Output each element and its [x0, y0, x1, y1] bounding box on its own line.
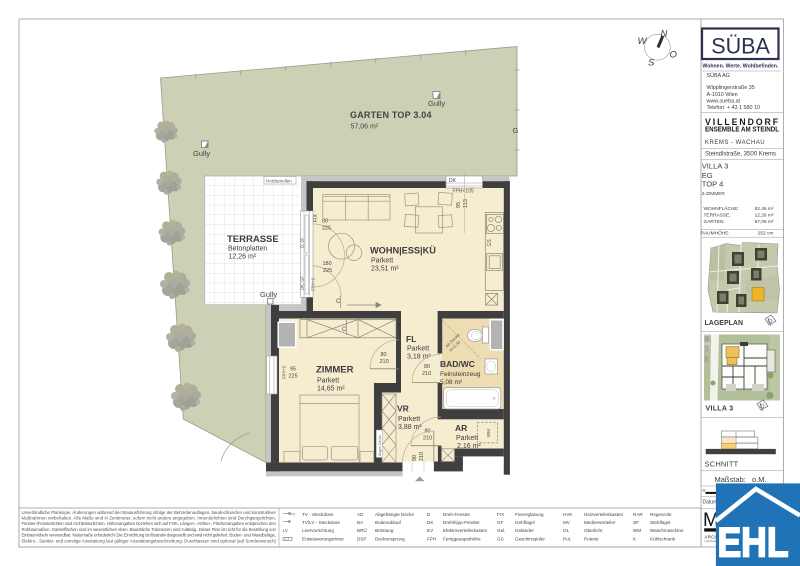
svg-text:Wipplingerstraße 35: Wipplingerstraße 35	[707, 85, 755, 91]
svg-text:113: 113	[463, 199, 469, 208]
svg-text:Steindlstraße, 3500 Krems: Steindlstraße, 3500 Krems	[705, 152, 776, 158]
svg-text:Regenrohr: Regenrohr	[650, 512, 672, 517]
svg-text:Abgehängte Decke: Abgehängte Decke	[375, 512, 415, 517]
svg-text:Fertigparapethöhe: Fertigparapethöhe	[443, 536, 481, 541]
svg-text:DK, GF: DK, GF	[300, 276, 305, 290]
svg-text:C: C	[336, 299, 341, 305]
svg-text:MV: MV	[563, 520, 571, 525]
svg-text:DK: DK	[427, 520, 434, 525]
svg-text:Gully: Gully	[428, 99, 445, 108]
svg-text:Puterie: Puterie	[584, 536, 599, 541]
svg-text:RAR: RAR	[633, 512, 643, 517]
svg-text:HVK: HVK	[563, 512, 573, 517]
svg-text:mayrhofer: mayrhofer	[705, 539, 718, 543]
svg-text:FIX: FIX	[313, 214, 319, 222]
svg-text:BAD/WC: BAD/WC	[440, 359, 475, 369]
svg-text:5,08 m²: 5,08 m²	[440, 379, 463, 386]
svg-text:Feinsteinzeug: Feinsteinzeug	[440, 371, 481, 378]
svg-text:Fenster-/Fensterlichten sind A: Fenster-/Fensterlichten sind Architektur…	[22, 521, 277, 526]
svg-text:O: O	[670, 50, 678, 61]
svg-text:FPH+5: FPH+5	[282, 365, 287, 379]
svg-text:N: N	[661, 29, 668, 40]
svg-text:ENSEMBLE AM STEINDL: ENSEMBLE AM STEINDL	[705, 127, 780, 134]
svg-text:ZIMMER: ZIMMER	[316, 365, 354, 376]
svg-text:VILLA 3: VILLA 3	[706, 406, 734, 413]
svg-text:252 cm: 252 cm	[758, 230, 774, 236]
svg-text:WM: WM	[633, 528, 641, 533]
svg-text:BRÜ: BRÜ	[357, 527, 367, 533]
svg-text:Parkett: Parkett	[407, 346, 429, 353]
svg-text:DSP: DSP	[357, 536, 366, 541]
svg-text:80: 80	[381, 352, 387, 358]
svg-text:210: 210	[422, 371, 431, 377]
svg-text:TERRASSE:: TERRASSE:	[704, 213, 731, 219]
svg-text:Gully: Gully	[260, 290, 277, 299]
svg-text:Datum: Datum	[703, 500, 718, 506]
svg-text:GS: GS	[487, 239, 493, 247]
svg-text:225: 225	[322, 226, 331, 232]
svg-text:Stehflügel: Stehflügel	[650, 520, 670, 525]
svg-text:VILLENDORF: VILLENDORF	[705, 117, 780, 127]
svg-text:G: G	[513, 126, 519, 135]
svg-text:SCHNITT: SCHNITT	[705, 460, 739, 469]
svg-text:FPH+0: FPH+0	[311, 277, 316, 291]
svg-text:225: 225	[323, 268, 332, 274]
svg-text:DK: DK	[449, 178, 457, 184]
svg-text:WOHNFLÄCHE:: WOHNFLÄCHE:	[704, 205, 739, 212]
svg-text:GARTEN:: GARTEN:	[704, 219, 725, 225]
svg-text:Parkett: Parkett	[456, 435, 478, 442]
svg-text:80: 80	[424, 364, 430, 370]
svg-text:Parkett: Parkett	[317, 378, 339, 385]
svg-text:TV - Steckdose: TV - Steckdose	[302, 512, 334, 517]
svg-text:Gully: Gully	[193, 149, 210, 158]
svg-text:Leervorrichtung: Leervorrichtung	[302, 528, 334, 533]
svg-text:225: 225	[289, 374, 298, 380]
svg-text:Gel.: Gel.	[497, 528, 505, 533]
svg-text:Abgeh.Decke: Abgeh.Decke	[378, 435, 382, 456]
svg-text:Einbaumöbeln verwendbar. Natur: Einbaumöbeln verwendbar. Naturmaße erfor…	[22, 533, 277, 538]
svg-text:Brüstung: Brüstung	[375, 528, 394, 533]
svg-text:Heizverteilerkasten: Heizverteilerkasten	[584, 512, 624, 517]
svg-text:12,26 m²: 12,26 m²	[229, 254, 257, 261]
svg-text:GARTEN TOP 3.04: GARTEN TOP 3.04	[350, 110, 432, 120]
svg-text:210: 210	[419, 452, 425, 461]
svg-text:OL: OL	[563, 528, 570, 533]
svg-text:Maßnahmen vorbehalten. Alle: Maßnahmen vorbehalten. Alle Maße sind in…	[22, 516, 277, 521]
svg-text:Deckensprung: Deckensprung	[375, 536, 405, 541]
svg-text:SÜBA: SÜBA	[711, 33, 770, 58]
svg-text:D, SF: D, SF	[300, 237, 305, 248]
svg-text:TERRASSE: TERRASSE	[227, 234, 279, 245]
svg-text:TOP 4: TOP 4	[702, 179, 724, 188]
svg-text:VR: VR	[397, 404, 409, 414]
svg-text:www.sueba.at: www.sueba.at	[706, 98, 741, 104]
svg-text:AD: AD	[357, 512, 364, 517]
svg-text:A-1010 Wien: A-1010 Wien	[707, 92, 738, 98]
svg-text:o.M.: o.M.	[752, 475, 767, 484]
svg-text:2-ZIMMER: 2-ZIMMER	[702, 191, 726, 197]
svg-text:VILLA 3: VILLA 3	[702, 162, 729, 171]
svg-text:AR: AR	[455, 423, 467, 433]
svg-text:FIX: FIX	[497, 512, 504, 517]
svg-text:FPH: FPH	[427, 536, 436, 541]
svg-text:Put.: Put.	[563, 536, 571, 541]
svg-text:S: S	[648, 58, 655, 69]
svg-text:KREMS - WACHAU: KREMS - WACHAU	[705, 140, 765, 146]
svg-text:WM: WM	[486, 429, 491, 437]
svg-text:Holzlamellen: Holzlamellen	[266, 178, 292, 183]
svg-text:Oberlicht: Oberlicht	[584, 528, 603, 533]
svg-text:FPH+105: FPH+105	[453, 189, 474, 195]
svg-text:180: 180	[323, 261, 332, 267]
svg-text:WOHN|ESS|KÜ: WOHN|ESS|KÜ	[370, 246, 436, 256]
svg-text:3,88 m²: 3,88 m²	[398, 424, 422, 431]
svg-text:Kühlschrank: Kühlschrank	[650, 536, 676, 541]
svg-text:Geländer: Geländer	[515, 528, 534, 533]
svg-text:Dreh-Fenster: Dreh-Fenster	[443, 512, 471, 517]
svg-text:95: 95	[456, 202, 462, 208]
svg-text:14,65 m²: 14,65 m²	[317, 386, 345, 393]
svg-text:Wohnen. Werte. Wohlbefinden.: Wohnen. Werte. Wohlbefinden.	[702, 64, 778, 70]
svg-text:Waschmaschine: Waschmaschine	[650, 528, 684, 533]
svg-text:GS: GS	[497, 536, 504, 541]
svg-text:TV: TV	[291, 513, 296, 517]
svg-text:BA: BA	[357, 520, 364, 525]
svg-text:Entwässerungsrinne: Entwässerungsrinne	[302, 536, 344, 541]
svg-text:LAGEPLAN: LAGEPLAN	[705, 320, 744, 327]
svg-text:Parkett: Parkett	[398, 416, 420, 423]
svg-text:90: 90	[412, 455, 418, 461]
svg-text:EV: EV	[427, 528, 434, 533]
svg-text:Telefon: + 43 1 580 10: Telefon: + 43 1 580 10	[707, 105, 761, 111]
svg-text:GF: GF	[497, 520, 504, 525]
svg-text:SF: SF	[633, 520, 639, 525]
svg-text:57,06 m²: 57,06 m²	[351, 124, 379, 131]
svg-text:Rohbaumaßen. Gartenflächen sin: Rohbaumaßen. Gartenflächen sind im wesen…	[22, 527, 277, 532]
svg-text:57,06 m²: 57,06 m²	[755, 219, 774, 225]
svg-text:Bodenablauf: Bodenablauf	[375, 520, 402, 525]
svg-text:SÜBA AG: SÜBA AG	[707, 72, 730, 79]
svg-text:FL: FL	[406, 334, 416, 344]
svg-text:Gehflügel: Gehflügel	[515, 520, 535, 525]
svg-text:TV/LV - Steckdose: TV/LV - Steckdose	[302, 520, 340, 525]
svg-text:52,46 m²: 52,46 m²	[755, 206, 774, 212]
svg-text:Medienverteiler: Medienverteiler	[584, 520, 616, 525]
svg-text:12,26 m²: 12,26 m²	[755, 213, 774, 219]
svg-text:EHL: EHL	[718, 519, 789, 566]
svg-text:Maßstab:: Maßstab:	[715, 475, 746, 484]
svg-text:Geschirrspüler: Geschirrspüler	[515, 536, 545, 541]
svg-text:Dreh/kipp-Fenster: Dreh/kipp-Fenster	[443, 520, 480, 525]
svg-text:W: W	[638, 36, 648, 47]
svg-text:RAUMHÖHE:: RAUMHÖHE:	[701, 229, 730, 236]
svg-text:Parkett: Parkett	[371, 258, 393, 265]
svg-text:Betonplatten: Betonplatten	[228, 246, 267, 253]
svg-text:95: 95	[290, 367, 296, 373]
svg-text:Unverbindliche Plankopie. Än: Unverbindliche Plankopie. Änderungen wäh…	[22, 510, 277, 515]
svg-text:23,51 m²: 23,51 m²	[371, 266, 399, 273]
svg-text:LV: LV	[283, 528, 288, 533]
svg-text:210: 210	[423, 436, 432, 442]
svg-text:2,16 m²: 2,16 m²	[457, 443, 481, 450]
svg-text:Fixverglasung: Fixverglasung	[515, 512, 544, 517]
svg-text:Elektro-, Sanitär- und sonstig: Elektro-, Sanitär- und sonstige Ausstatt…	[22, 538, 277, 543]
svg-text:Elektroverteilerkasten: Elektroverteilerkasten	[443, 528, 488, 533]
svg-text:210: 210	[380, 359, 389, 365]
